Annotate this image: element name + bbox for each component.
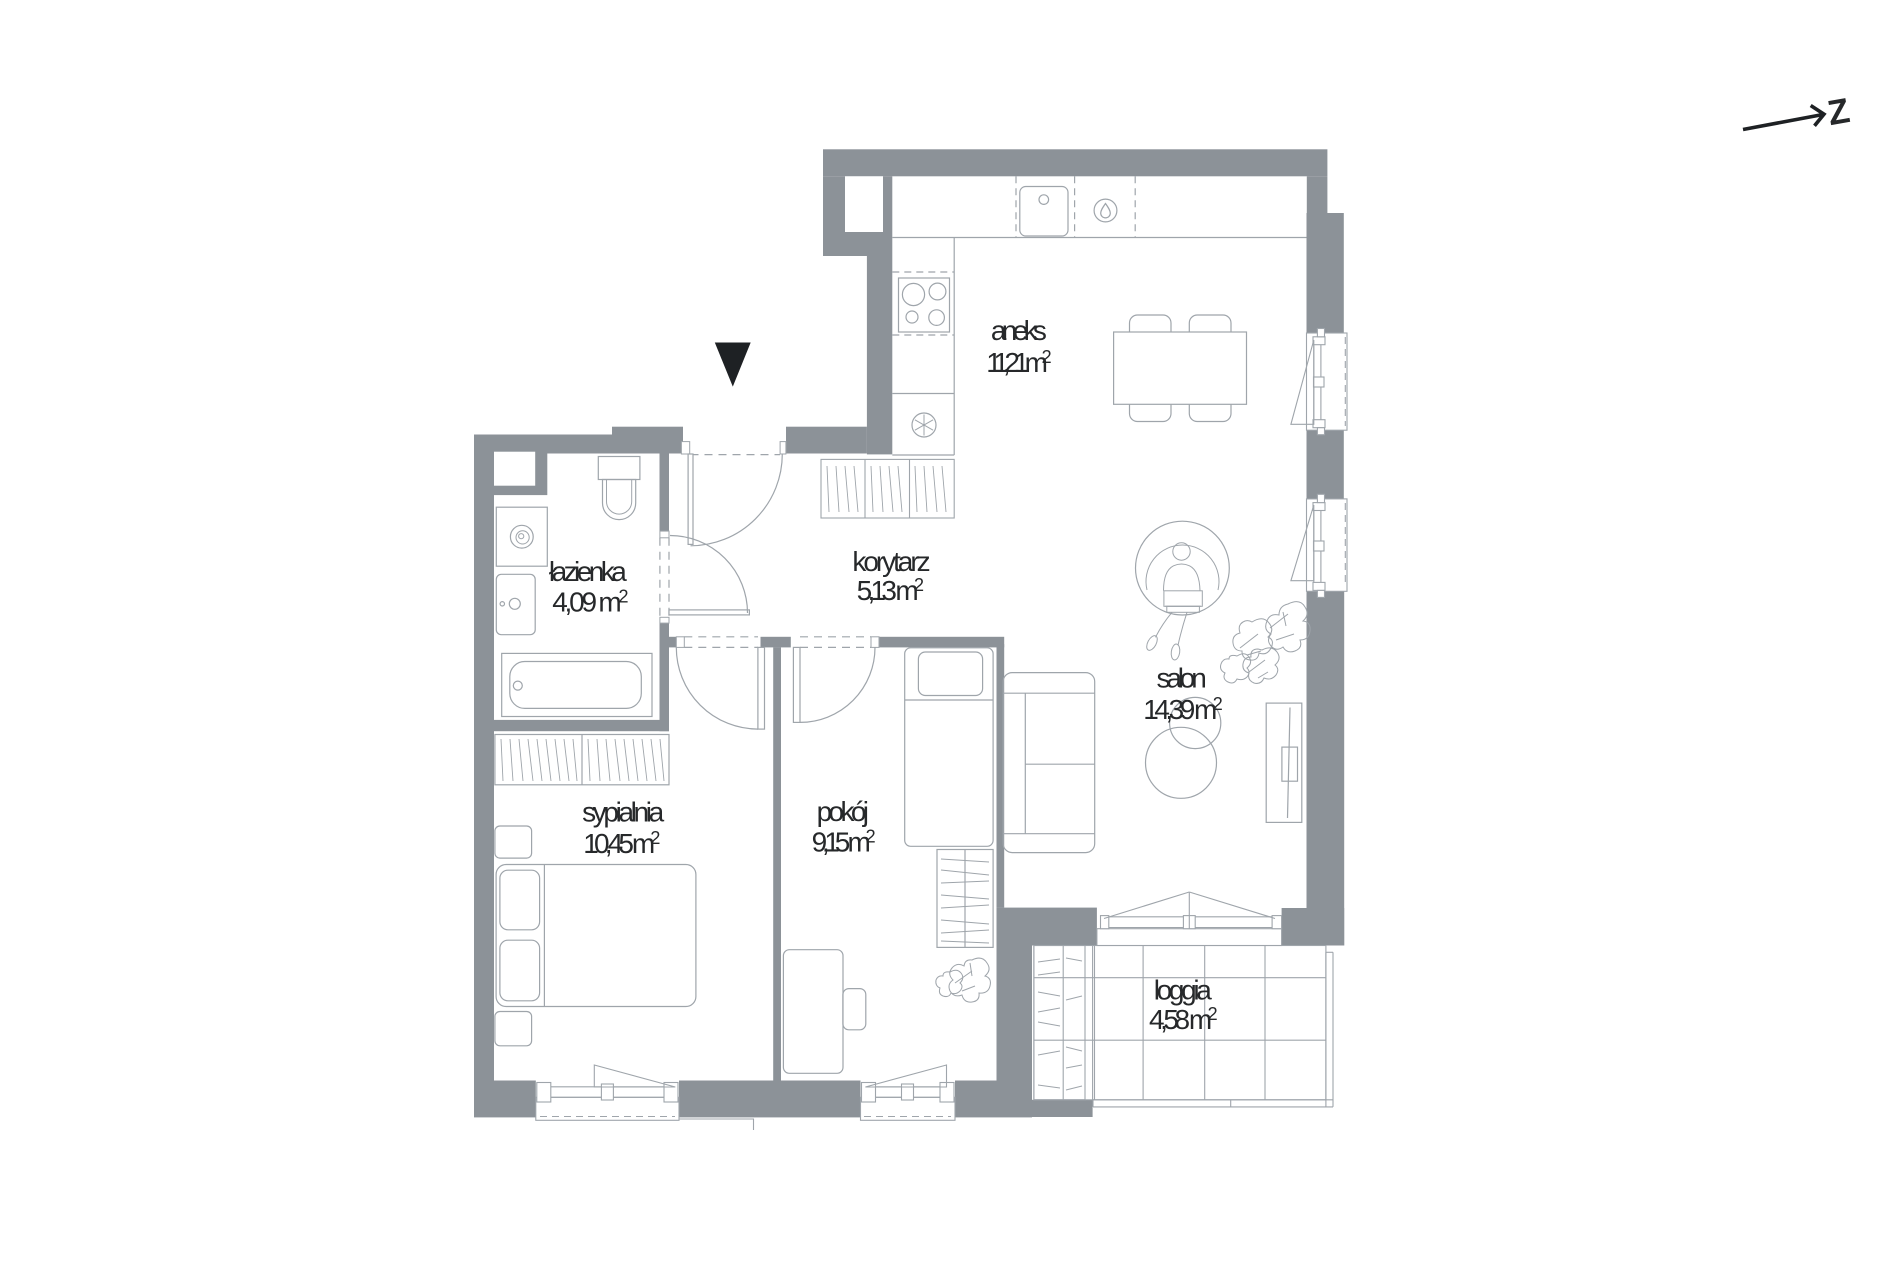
svg-text:4,58 m2: 4,58 m2	[1149, 1004, 1218, 1035]
svg-text:aneks: aneks	[991, 315, 1047, 346]
svg-text:5,13 m2: 5,13 m2	[857, 575, 924, 606]
svg-text:10,45 m2: 10,45 m2	[583, 828, 660, 859]
svg-text:salon: salon	[1157, 663, 1207, 694]
svg-text:korytarz: korytarz	[852, 546, 930, 577]
svg-text:sypialnia: sypialnia	[582, 797, 665, 828]
svg-text:pokój: pokój	[817, 796, 869, 827]
svg-text:14,39 m2: 14,39 m2	[1143, 694, 1223, 725]
svg-text:11,21 m2: 11,21 m2	[986, 347, 1051, 378]
svg-text:9,15 m2: 9,15 m2	[812, 827, 876, 858]
svg-text:łazienka: łazienka	[549, 556, 627, 587]
svg-text:4,09 m2: 4,09 m2	[552, 587, 628, 618]
svg-text:loggia: loggia	[1154, 975, 1212, 1006]
